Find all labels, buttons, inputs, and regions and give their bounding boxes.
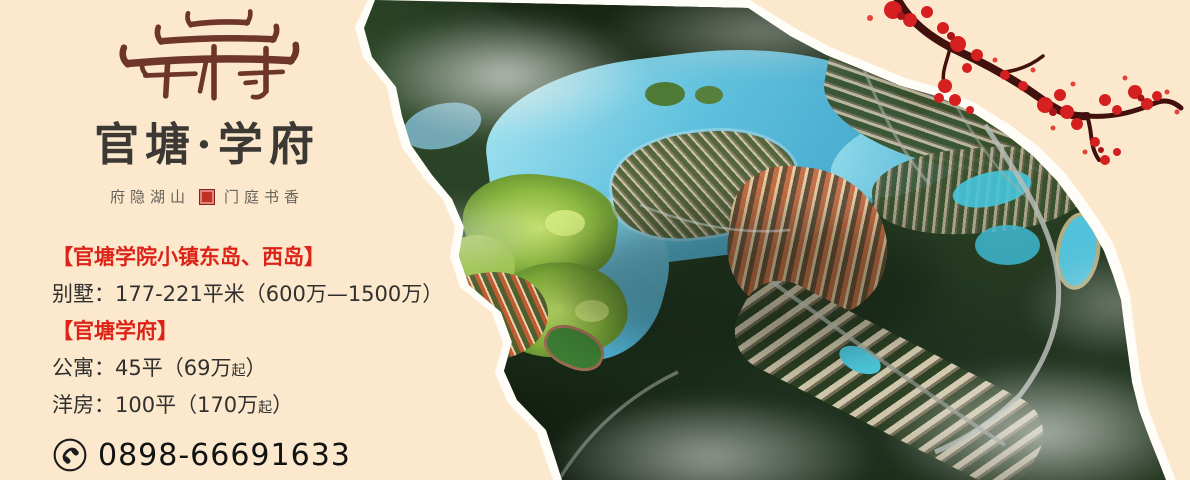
brand-block: 官塘·学府 府隐湖山 门庭书香 [52,8,362,207]
brand-slogan: 府隐湖山 门庭书香 [52,186,362,207]
plum-blossom-icon [855,0,1190,195]
slogan-left: 府隐湖山 [110,186,190,207]
archway-logo-icon [110,8,305,104]
terrace-offer-line: 洋房：100平（170万起） [52,389,422,419]
contact-phone-row: 0898-66691633 [52,437,422,473]
slogan-right: 门庭书香 [224,186,304,207]
villa-offer-line: 别墅：177-221平米（600万—1500万） [52,278,422,308]
phone-number: 0898-66691633 [98,438,351,473]
xuefu-section-header: 【官塘学府】 [52,315,422,345]
apartment-offer-line: 公寓：45平（69万起） [52,352,422,382]
info-panel: 官塘·学府 府隐湖山 门庭书香 【官塘学院小镇东岛、西岛】 别墅：177-221… [52,0,422,473]
real-estate-ad-banner[interactable]: 官塘·学府 府隐湖山 门庭书香 【官塘学院小镇东岛、西岛】 别墅：177-221… [0,0,1190,480]
islands-section-header: 【官塘学院小镇东岛、西岛】 [52,241,422,271]
phone-icon [52,437,88,473]
seal-icon [199,189,215,205]
offer-list: 【官塘学院小镇东岛、西岛】 别墅：177-221平米（600万—1500万） 【… [52,241,422,419]
project-title: 官塘·学府 [52,108,362,173]
